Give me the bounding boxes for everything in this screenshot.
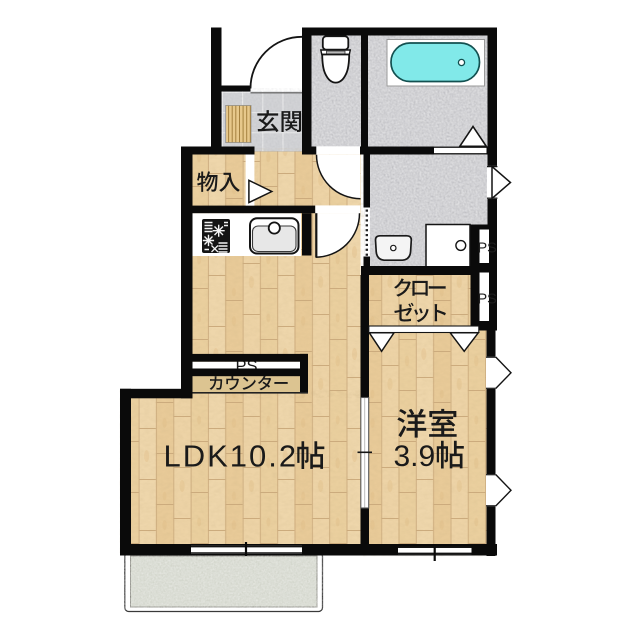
svg-text:3.9: 3.9 [394,440,436,473]
svg-text:LDK10.2: LDK10.2 [164,439,299,474]
svg-text:PS: PS [478,241,497,257]
svg-text:PS: PS [478,291,497,307]
